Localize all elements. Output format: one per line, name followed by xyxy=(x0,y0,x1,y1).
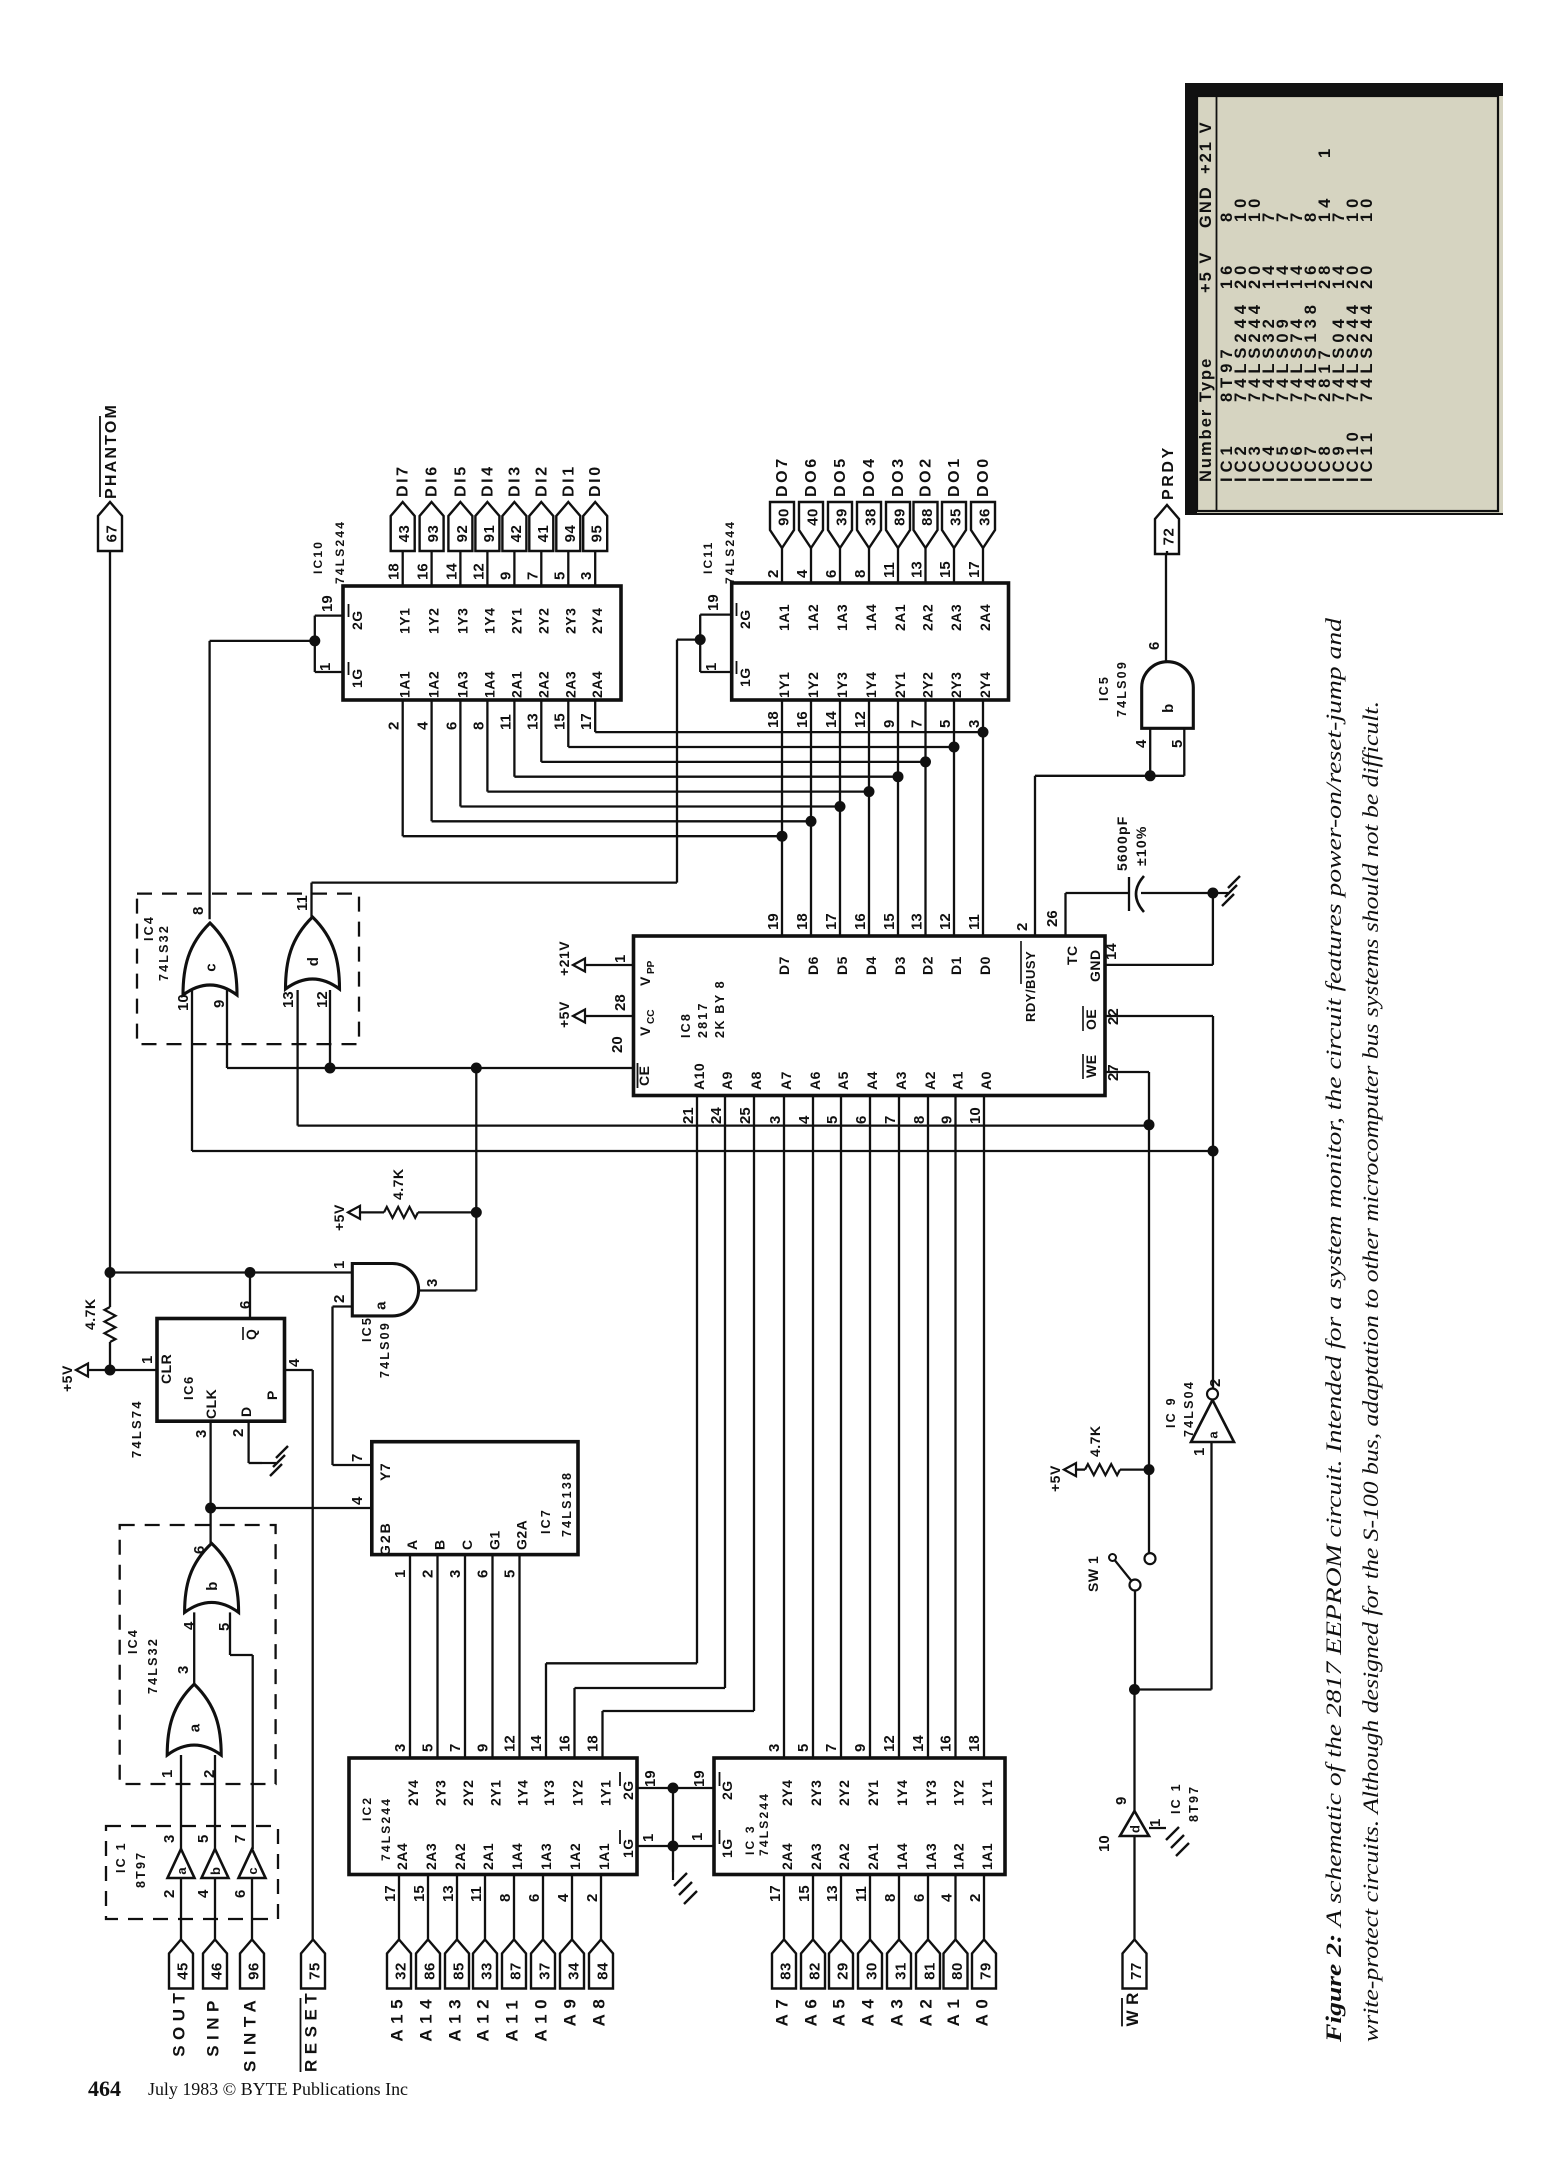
svg-text:write-protect circuits. Althou: write-protect circuits. Although designe… xyxy=(1358,701,1383,2042)
svg-text:2Y3: 2Y3 xyxy=(562,608,578,634)
svg-text:DI4: DI4 xyxy=(479,464,496,497)
svg-text:1Y4: 1Y4 xyxy=(515,1780,531,1806)
svg-text:1G: 1G xyxy=(719,1838,735,1858)
svg-text:19: 19 xyxy=(705,594,722,611)
svg-text:5: 5 xyxy=(420,1744,437,1752)
svg-text:7: 7 xyxy=(823,1744,840,1752)
svg-text:4: 4 xyxy=(181,1621,198,1630)
svg-text:10: 10 xyxy=(175,994,192,1011)
svg-text:1A4: 1A4 xyxy=(894,1843,910,1870)
svg-text:4: 4 xyxy=(796,1115,813,1124)
svg-text:A5: A5 xyxy=(830,1994,849,2027)
svg-text:7: 7 xyxy=(349,1454,366,1462)
svg-text:a: a xyxy=(1206,1431,1221,1439)
svg-text:3: 3 xyxy=(175,1666,192,1674)
svg-text:8: 8 xyxy=(852,570,869,578)
svg-text:10: 10 xyxy=(1358,194,1376,222)
svg-text:17: 17 xyxy=(823,913,840,930)
svg-text:A14: A14 xyxy=(417,1994,436,2042)
svg-text:15: 15 xyxy=(551,713,568,730)
svg-text:6: 6 xyxy=(475,1570,492,1578)
svg-text:A0: A0 xyxy=(973,1994,992,2027)
svg-text:1G: 1G xyxy=(620,1838,636,1858)
svg-text:c: c xyxy=(245,1867,260,1874)
svg-text:IC 1: IC 1 xyxy=(114,1841,128,1873)
svg-text:43: 43 xyxy=(396,525,413,543)
svg-text:SW 1: SW 1 xyxy=(1085,1556,1101,1592)
svg-text:TC: TC xyxy=(1064,945,1080,965)
svg-text:89: 89 xyxy=(892,508,909,526)
svg-text:12: 12 xyxy=(852,711,869,728)
svg-text:1A3: 1A3 xyxy=(538,1843,554,1870)
svg-text:90: 90 xyxy=(776,508,793,526)
svg-text:1: 1 xyxy=(640,1834,657,1842)
svg-text:2A3: 2A3 xyxy=(948,604,964,631)
svg-text:6: 6 xyxy=(526,1894,543,1902)
svg-text:1Y4: 1Y4 xyxy=(863,672,879,698)
svg-text:1A4: 1A4 xyxy=(481,671,497,698)
svg-text:4: 4 xyxy=(1133,739,1150,748)
svg-text:2G: 2G xyxy=(719,1780,735,1800)
svg-text:A13: A13 xyxy=(446,1994,465,2042)
svg-text:IC5: IC5 xyxy=(1097,675,1111,701)
svg-text:91: 91 xyxy=(481,525,498,543)
svg-text:74LS04: 74LS04 xyxy=(1182,1380,1196,1437)
svg-text:17: 17 xyxy=(966,561,983,578)
svg-text:1Y4: 1Y4 xyxy=(894,1780,910,1806)
svg-text:39: 39 xyxy=(834,508,851,526)
svg-text:+5 V: +5 V xyxy=(1197,251,1215,293)
svg-text:13: 13 xyxy=(909,561,926,578)
svg-text:38: 38 xyxy=(863,508,880,526)
svg-text:IC8: IC8 xyxy=(679,1012,693,1038)
svg-text:5: 5 xyxy=(795,1744,812,1752)
svg-text:1Y2: 1Y2 xyxy=(805,672,821,698)
svg-text:1Y3: 1Y3 xyxy=(541,1780,557,1806)
svg-text:74LS244: 74LS244 xyxy=(757,1792,771,1856)
svg-text:67: 67 xyxy=(104,525,121,543)
svg-text:D5: D5 xyxy=(834,956,850,975)
svg-text:17: 17 xyxy=(767,1885,784,1902)
svg-text:21: 21 xyxy=(680,1107,697,1124)
svg-text:11: 11 xyxy=(497,714,514,730)
svg-text:16: 16 xyxy=(794,711,811,728)
svg-text:DO1: DO1 xyxy=(946,456,963,497)
svg-text:A8: A8 xyxy=(590,1994,609,2027)
svg-text:2Y1: 2Y1 xyxy=(892,672,908,698)
svg-text:2817: 2817 xyxy=(696,1001,710,1038)
svg-text:2Y2: 2Y2 xyxy=(920,672,936,698)
svg-text:2: 2 xyxy=(161,1890,178,1898)
svg-text:45: 45 xyxy=(175,1962,192,1980)
svg-text:WE: WE xyxy=(1083,1054,1099,1078)
svg-text:11: 11 xyxy=(966,914,983,930)
svg-text:±10%: ±10% xyxy=(1133,825,1149,866)
svg-text:1Y1: 1Y1 xyxy=(598,1780,614,1806)
svg-text:1Y2: 1Y2 xyxy=(426,608,442,634)
svg-text:CLR: CLR xyxy=(158,1354,174,1384)
svg-text:40: 40 xyxy=(805,508,822,526)
svg-text:20: 20 xyxy=(609,1036,626,1053)
svg-text:2: 2 xyxy=(1014,923,1031,931)
svg-text:A7: A7 xyxy=(778,1071,794,1090)
svg-text:19: 19 xyxy=(691,1770,708,1787)
svg-text:30: 30 xyxy=(864,1962,881,1980)
svg-text:1: 1 xyxy=(139,1356,156,1364)
svg-text:12: 12 xyxy=(470,563,487,580)
svg-text:6: 6 xyxy=(232,1890,249,1898)
svg-text:DO6: DO6 xyxy=(803,456,820,497)
svg-text:a: a xyxy=(174,1867,189,1875)
svg-text:1Y3: 1Y3 xyxy=(454,608,470,634)
svg-text:+5V: +5V xyxy=(1047,1465,1063,1492)
svg-text:2Y2: 2Y2 xyxy=(535,608,551,634)
svg-text:V: V xyxy=(637,1026,653,1036)
svg-text:A1: A1 xyxy=(944,1994,963,2027)
svg-text:93: 93 xyxy=(425,525,442,543)
svg-text:IC2: IC2 xyxy=(360,1796,374,1821)
svg-text:b: b xyxy=(208,1867,223,1875)
svg-text:13: 13 xyxy=(909,913,926,930)
svg-text:18: 18 xyxy=(966,1735,983,1752)
svg-text:DI0: DI0 xyxy=(587,464,604,497)
svg-text:8: 8 xyxy=(190,907,207,915)
svg-text:1Y3: 1Y3 xyxy=(923,1780,939,1806)
svg-text:2A4: 2A4 xyxy=(779,1843,795,1870)
svg-text:3: 3 xyxy=(392,1744,409,1752)
svg-text:D: D xyxy=(238,1407,254,1417)
svg-text:4.7K: 4.7K xyxy=(1087,1425,1103,1457)
svg-text:4.7K: 4.7K xyxy=(390,1168,406,1200)
svg-text:5: 5 xyxy=(824,1116,841,1124)
svg-text:36: 36 xyxy=(977,508,994,526)
svg-text:4: 4 xyxy=(794,569,811,578)
svg-text:1A2: 1A2 xyxy=(951,1843,967,1870)
svg-text:PP: PP xyxy=(646,960,657,974)
svg-text:7: 7 xyxy=(882,1116,899,1124)
svg-text:19: 19 xyxy=(642,1770,659,1787)
svg-text:10: 10 xyxy=(967,1107,984,1124)
svg-text:3: 3 xyxy=(447,1570,464,1578)
svg-text:74LS244: 74LS244 xyxy=(379,1797,393,1861)
svg-text:+5V: +5V xyxy=(59,1365,75,1392)
svg-text:7: 7 xyxy=(909,720,926,728)
svg-text:DO5: DO5 xyxy=(832,456,849,497)
svg-text:3: 3 xyxy=(966,720,983,728)
svg-text:B: B xyxy=(432,1539,448,1550)
svg-text:IC 1: IC 1 xyxy=(1169,1782,1183,1814)
svg-text:6: 6 xyxy=(1146,642,1163,650)
svg-text:4: 4 xyxy=(415,721,432,730)
svg-text:2A1: 2A1 xyxy=(865,1843,881,1870)
svg-text:2Y3: 2Y3 xyxy=(808,1780,824,1806)
svg-text:74LS244: 74LS244 xyxy=(1358,300,1376,402)
svg-text:DI2: DI2 xyxy=(533,464,550,497)
svg-text:IC11: IC11 xyxy=(1358,428,1376,482)
svg-text:2G: 2G xyxy=(737,609,753,629)
svg-text:2Y2: 2Y2 xyxy=(836,1780,852,1806)
svg-text:2A4: 2A4 xyxy=(589,671,605,698)
svg-text:b: b xyxy=(204,1582,221,1591)
svg-text:1A3: 1A3 xyxy=(923,1843,939,1870)
svg-text:41: 41 xyxy=(535,525,552,543)
svg-text:4: 4 xyxy=(939,1893,956,1902)
svg-text:19: 19 xyxy=(319,595,336,612)
svg-text:2: 2 xyxy=(1207,1379,1224,1387)
svg-text:5: 5 xyxy=(551,572,568,580)
svg-text:2: 2 xyxy=(386,722,403,730)
svg-text:9: 9 xyxy=(881,720,898,728)
svg-text:2: 2 xyxy=(230,1429,247,1437)
svg-text:IC6: IC6 xyxy=(181,1375,196,1400)
svg-text:13: 13 xyxy=(440,1885,457,1902)
svg-text:35: 35 xyxy=(948,508,965,526)
svg-text:5: 5 xyxy=(195,1835,212,1843)
svg-text:32: 32 xyxy=(393,1962,410,1980)
svg-text:A: A xyxy=(404,1539,420,1550)
svg-text:6: 6 xyxy=(823,570,840,578)
svg-text:A4: A4 xyxy=(859,1994,878,2027)
svg-text:2Y4: 2Y4 xyxy=(977,672,993,698)
svg-text:1A1: 1A1 xyxy=(596,1843,612,1870)
svg-text:11: 11 xyxy=(468,1886,485,1902)
svg-text:A7: A7 xyxy=(773,1994,792,2027)
svg-text:D7: D7 xyxy=(776,956,792,975)
svg-text:c: c xyxy=(203,963,220,971)
svg-text:DO4: DO4 xyxy=(861,456,878,497)
svg-text:3: 3 xyxy=(161,1835,178,1843)
svg-text:8: 8 xyxy=(911,1116,928,1124)
svg-text:15: 15 xyxy=(411,1885,428,1902)
svg-text:13: 13 xyxy=(524,713,541,730)
svg-text:D1: D1 xyxy=(948,956,964,975)
svg-text:5: 5 xyxy=(502,1570,519,1578)
svg-text:2A3: 2A3 xyxy=(562,671,578,698)
svg-text:A2: A2 xyxy=(922,1071,938,1090)
svg-text:3: 3 xyxy=(578,572,595,580)
svg-text:18: 18 xyxy=(765,711,782,728)
svg-text:C: C xyxy=(459,1539,475,1550)
svg-text:27: 27 xyxy=(1105,1064,1122,1081)
svg-text:A10: A10 xyxy=(691,1063,707,1090)
svg-text:14: 14 xyxy=(910,1735,927,1752)
svg-text:25: 25 xyxy=(737,1107,754,1124)
svg-text:2A1: 2A1 xyxy=(892,604,908,631)
svg-text:d: d xyxy=(305,957,322,966)
svg-text:CE: CE xyxy=(636,1066,652,1086)
svg-text:1A3: 1A3 xyxy=(834,604,850,631)
svg-text:DI5: DI5 xyxy=(452,464,469,497)
svg-text:3: 3 xyxy=(766,1744,783,1752)
svg-text:1: 1 xyxy=(317,663,334,671)
svg-text:10: 10 xyxy=(1096,1835,1113,1852)
svg-text:A5: A5 xyxy=(835,1071,851,1090)
svg-text:A3: A3 xyxy=(893,1071,909,1090)
svg-text:14: 14 xyxy=(1103,943,1120,960)
svg-text:8: 8 xyxy=(882,1894,899,1902)
svg-text:88: 88 xyxy=(919,508,936,526)
svg-text:2Y1: 2Y1 xyxy=(508,608,524,634)
svg-text:DI6: DI6 xyxy=(424,464,441,497)
svg-text:11: 11 xyxy=(881,562,898,578)
svg-text:DI1: DI1 xyxy=(560,464,577,497)
svg-text:2Y3: 2Y3 xyxy=(948,672,964,698)
svg-text:75: 75 xyxy=(307,1962,324,1980)
svg-text:1: 1 xyxy=(703,663,720,671)
svg-text:+5V: +5V xyxy=(556,1001,572,1028)
svg-text:IC4: IC4 xyxy=(142,915,156,941)
svg-text:Number: Number xyxy=(1197,408,1215,482)
svg-text:1: 1 xyxy=(1147,1819,1164,1827)
svg-text:Q: Q xyxy=(243,1329,259,1340)
svg-text:2A1: 2A1 xyxy=(480,1843,496,1870)
svg-text:d: d xyxy=(1128,1825,1143,1833)
svg-text:8T97: 8T97 xyxy=(1187,1785,1201,1822)
svg-text:12: 12 xyxy=(502,1735,519,1752)
svg-text:74LS74: 74LS74 xyxy=(129,1399,144,1458)
svg-text:IC5: IC5 xyxy=(360,1316,374,1342)
svg-text:A9: A9 xyxy=(719,1071,735,1090)
svg-text:16: 16 xyxy=(557,1735,574,1752)
svg-text:20: 20 xyxy=(1358,261,1376,289)
svg-text:b: b xyxy=(1160,704,1177,713)
svg-text:IC 9: IC 9 xyxy=(1164,1396,1178,1428)
svg-text:SINTA: SINTA xyxy=(241,1995,260,2072)
svg-text:2A2: 2A2 xyxy=(920,604,936,631)
svg-text:84: 84 xyxy=(595,1962,612,1980)
svg-text:A6: A6 xyxy=(807,1071,823,1090)
svg-text:9: 9 xyxy=(475,1744,492,1752)
svg-text:2: 2 xyxy=(584,1894,601,1902)
svg-text:A6: A6 xyxy=(802,1994,821,2027)
svg-text:3: 3 xyxy=(424,1279,441,1287)
svg-text:74LS32: 74LS32 xyxy=(146,1637,160,1694)
svg-text:OE: OE xyxy=(1083,1009,1099,1030)
svg-text:4: 4 xyxy=(286,1358,303,1367)
svg-text:14: 14 xyxy=(528,1735,545,1752)
svg-text:2Y3: 2Y3 xyxy=(433,1780,449,1806)
svg-text:82: 82 xyxy=(807,1962,824,1980)
svg-text:1A2: 1A2 xyxy=(426,671,442,698)
svg-text:2Y4: 2Y4 xyxy=(589,608,605,634)
svg-text:9: 9 xyxy=(1113,1797,1130,1805)
svg-text:A9: A9 xyxy=(561,1994,580,2027)
svg-text:2A2: 2A2 xyxy=(452,1843,468,1870)
svg-text:RESET: RESET xyxy=(302,1988,321,2072)
svg-text:GND: GND xyxy=(1197,185,1215,228)
svg-text:16: 16 xyxy=(415,563,432,580)
svg-text:D4: D4 xyxy=(863,956,879,975)
svg-text:72: 72 xyxy=(1161,528,1178,546)
svg-text:13: 13 xyxy=(824,1885,841,1902)
svg-text:GND: GND xyxy=(1087,949,1103,982)
svg-text:1Y1: 1Y1 xyxy=(397,608,413,634)
svg-text:1: 1 xyxy=(612,955,629,963)
svg-text:86: 86 xyxy=(422,1962,439,1980)
svg-text:9: 9 xyxy=(939,1116,956,1124)
svg-text:15: 15 xyxy=(881,913,898,930)
svg-text:A12: A12 xyxy=(474,1994,493,2042)
svg-text:79: 79 xyxy=(978,1962,995,1980)
svg-text:33: 33 xyxy=(479,1962,496,1980)
svg-text:14: 14 xyxy=(823,711,840,728)
svg-text:28: 28 xyxy=(612,994,629,1011)
svg-text:9: 9 xyxy=(497,572,514,580)
svg-text:74LS138: 74LS138 xyxy=(560,1471,574,1537)
svg-text:95: 95 xyxy=(589,525,606,543)
svg-text:92: 92 xyxy=(454,525,471,543)
svg-text:1A2: 1A2 xyxy=(805,604,821,631)
svg-text:Figure 2: A schematic of the 2: Figure 2: A schematic of the 2817 EEPROM… xyxy=(1321,617,1346,2043)
svg-text:46: 46 xyxy=(209,1962,226,1980)
svg-text:83: 83 xyxy=(778,1962,795,1980)
svg-text:2: 2 xyxy=(420,1570,437,1578)
svg-text:7: 7 xyxy=(447,1744,464,1752)
svg-text:2A4: 2A4 xyxy=(394,1843,410,1870)
svg-text:A10: A10 xyxy=(532,1994,551,2042)
svg-text:1: 1 xyxy=(331,1261,348,1269)
svg-text:4.7K: 4.7K xyxy=(82,1298,98,1330)
svg-text:PRDY: PRDY xyxy=(1160,445,1177,500)
svg-text:July 1983 © BYTE Publications: July 1983 © BYTE Publications Inc xyxy=(148,2079,408,2099)
svg-text:PHANTOM: PHANTOM xyxy=(103,403,120,499)
svg-text:12: 12 xyxy=(937,913,954,930)
svg-text:A3: A3 xyxy=(888,1994,907,2027)
svg-text:RDY/BUSY: RDY/BUSY xyxy=(1023,951,1038,1022)
svg-text:2A3: 2A3 xyxy=(423,1843,439,1870)
svg-text:7: 7 xyxy=(232,1835,249,1843)
svg-text:87: 87 xyxy=(508,1962,525,1980)
svg-text:D3: D3 xyxy=(892,956,908,975)
svg-text:16: 16 xyxy=(852,913,869,930)
svg-text:74LS244: 74LS244 xyxy=(333,520,347,584)
svg-text:IC11: IC11 xyxy=(701,541,715,575)
svg-text:3: 3 xyxy=(767,1116,784,1124)
svg-text:2: 2 xyxy=(967,1894,984,1902)
svg-text:5600pF: 5600pF xyxy=(1114,816,1130,871)
svg-text:1A1: 1A1 xyxy=(979,1843,995,1870)
svg-text:11: 11 xyxy=(294,895,311,911)
svg-text:Y7: Y7 xyxy=(377,1463,393,1481)
svg-text:464: 464 xyxy=(88,2076,121,2101)
svg-text:D6: D6 xyxy=(805,956,821,975)
svg-text:2G: 2G xyxy=(620,1780,636,1800)
svg-text:2A2: 2A2 xyxy=(836,1843,852,1870)
svg-text:7: 7 xyxy=(524,572,541,580)
svg-text:1Y2: 1Y2 xyxy=(570,1780,586,1806)
svg-text:2A4: 2A4 xyxy=(977,604,993,631)
svg-text:2: 2 xyxy=(765,570,782,578)
svg-text:37: 37 xyxy=(537,1962,554,1980)
svg-text:IC 3: IC 3 xyxy=(743,1824,757,1855)
svg-text:8: 8 xyxy=(470,722,487,730)
svg-text:9: 9 xyxy=(211,1000,228,1008)
svg-text:+21V: +21V xyxy=(556,941,572,976)
svg-text:+5V: +5V xyxy=(331,1204,347,1231)
svg-text:85: 85 xyxy=(451,1962,468,1980)
svg-text:15: 15 xyxy=(796,1885,813,1902)
svg-text:4: 4 xyxy=(195,1889,212,1898)
svg-text:2Y1: 2Y1 xyxy=(865,1780,881,1806)
svg-text:42: 42 xyxy=(508,525,525,543)
svg-text:96: 96 xyxy=(246,1962,263,1980)
svg-text:34: 34 xyxy=(566,1962,583,1980)
svg-text:1Y3: 1Y3 xyxy=(834,672,850,698)
svg-text:IC4: IC4 xyxy=(126,1628,140,1654)
svg-text:6: 6 xyxy=(853,1116,870,1124)
svg-text:A0: A0 xyxy=(978,1071,994,1090)
svg-text:81: 81 xyxy=(922,1962,939,1980)
